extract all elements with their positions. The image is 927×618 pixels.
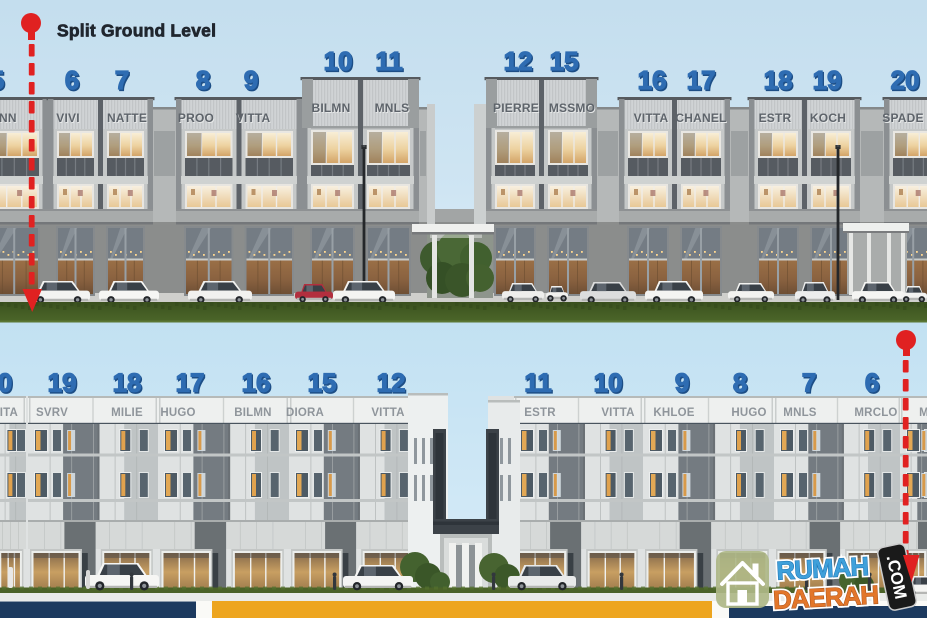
svg-text:MRCLO: MRCLO: [854, 407, 897, 419]
svg-text:KHLOE: KHLOE: [653, 407, 694, 419]
svg-text:0: 0: [0, 368, 12, 398]
svg-text:18: 18: [764, 65, 793, 95]
svg-text:VIVI: VIVI: [56, 111, 79, 125]
svg-text:VITTA: VITTA: [601, 407, 634, 419]
svg-text:12: 12: [504, 46, 533, 76]
svg-text:VITA: VITA: [0, 407, 18, 419]
svg-text:VINN: VINN: [0, 111, 17, 125]
svg-text:16: 16: [242, 368, 271, 398]
svg-text:NATTE: NATTE: [107, 111, 147, 125]
svg-text:ESTR: ESTR: [759, 111, 792, 125]
svg-text:VITTA: VITTA: [371, 407, 404, 419]
svg-text:16: 16: [638, 65, 667, 95]
svg-text:10: 10: [324, 46, 353, 76]
svg-text:DIORA: DIORA: [286, 407, 324, 419]
svg-text:CHANEL: CHANEL: [675, 111, 726, 125]
svg-text:17: 17: [176, 368, 205, 398]
svg-text:ESTR: ESTR: [524, 407, 556, 419]
svg-text:HUGO: HUGO: [731, 407, 766, 419]
svg-text:MSSMO: MSSMO: [549, 101, 595, 115]
svg-text:18: 18: [113, 368, 142, 398]
svg-text:VITTA: VITTA: [236, 111, 271, 125]
svg-text:5: 5: [0, 65, 4, 95]
svg-text:19: 19: [813, 65, 842, 95]
svg-text:HUGO: HUGO: [160, 407, 195, 419]
svg-text:10: 10: [594, 368, 623, 398]
svg-text:M: M: [919, 407, 927, 419]
svg-text:8: 8: [196, 65, 210, 95]
svg-text:17: 17: [687, 65, 716, 95]
svg-text:DAERAH: DAERAH: [772, 580, 879, 615]
svg-text:BILMN: BILMN: [234, 407, 271, 419]
svg-text:MNLS: MNLS: [783, 407, 817, 419]
svg-text:KOCH: KOCH: [810, 111, 846, 125]
svg-text:PIERRE: PIERRE: [493, 101, 539, 115]
svg-text:20: 20: [891, 65, 920, 95]
svg-text:11: 11: [524, 368, 552, 398]
svg-text:Split Ground Level: Split Ground Level: [57, 21, 216, 41]
svg-text:7: 7: [115, 65, 129, 95]
svg-text:11: 11: [375, 46, 403, 76]
svg-text:SPADE: SPADE: [882, 111, 923, 125]
svg-text:MNLS: MNLS: [375, 101, 410, 115]
svg-text:9: 9: [244, 65, 258, 95]
svg-text:15: 15: [308, 368, 337, 398]
svg-text:BILMN: BILMN: [312, 101, 351, 115]
svg-text:SVRV: SVRV: [36, 407, 68, 419]
svg-text:8: 8: [733, 368, 747, 398]
svg-text:VITTA: VITTA: [634, 111, 669, 125]
svg-text:6: 6: [65, 65, 79, 95]
svg-text:7: 7: [802, 368, 816, 398]
svg-text:MILIE: MILIE: [111, 407, 143, 419]
svg-text:9: 9: [675, 368, 689, 398]
svg-text:6: 6: [865, 368, 879, 398]
svg-text:PROO: PROO: [178, 111, 214, 125]
svg-text:15: 15: [550, 46, 579, 76]
svg-text:19: 19: [48, 368, 77, 398]
svg-text:12: 12: [377, 368, 406, 398]
